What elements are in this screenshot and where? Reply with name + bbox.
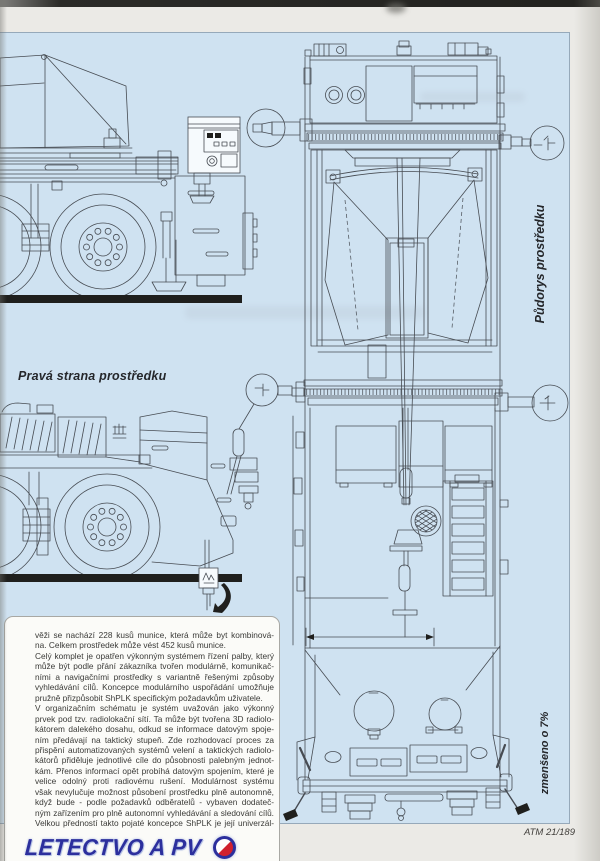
- article-line: pružně přizpůsobit ShPLK specifickým pož…: [35, 693, 274, 703]
- drawing-plan-view: [246, 41, 568, 821]
- ground-line: [0, 295, 242, 303]
- article-line: vyhledávání cílů. Koncepce modulárního u…: [35, 682, 274, 692]
- article-line: ními a navigačními prostředky s variantn…: [35, 672, 274, 682]
- wheel-lugs: [88, 508, 127, 545]
- scale-note-label: zmenšeno o 7%: [539, 712, 551, 795]
- mirror-icon: [233, 429, 244, 456]
- scan-edge-shade-left: [0, 0, 7, 861]
- article-line: Celý komplet je opatřen výkonným systéme…: [35, 651, 274, 661]
- article-line: však nevylučuje možnost působení prostře…: [35, 787, 274, 797]
- detail-circle-probe: [246, 374, 278, 406]
- article-text: věži se nachází 228 kusů munice, která m…: [35, 630, 274, 829]
- magazine-logo: LETECTVO A PV: [25, 834, 236, 861]
- article-line: na. Celkem prostředek může vést 452 kusů…: [35, 640, 274, 650]
- wheel-lugs: [84, 228, 123, 265]
- issue-reference: ATM 21/189: [505, 827, 575, 838]
- article-line: Velkou předností takto pojaté koncepce S…: [35, 818, 274, 828]
- drawing-btr-front: [0, 403, 258, 613]
- plan-view-label: Půdorys prostředku: [533, 205, 547, 324]
- mirror-icon: [515, 803, 530, 815]
- czech-roundel-icon: [213, 836, 236, 859]
- mirror-icon: [283, 809, 298, 821]
- article-line: může být podle přání zákazníka tvořen mo…: [35, 661, 274, 671]
- article-line: velice odolný proti radiovému rušení. Mo…: [35, 776, 274, 786]
- side-view-label: Pravá strana prostředku: [18, 369, 166, 383]
- article-line: když bude - podle požadavků odběratelů -…: [35, 797, 274, 807]
- article-line: ním předávají na taktický stupeň. Zde ro…: [35, 735, 274, 745]
- article-line: kátorů přiděluje jednotlivé cíle do půso…: [35, 755, 274, 765]
- article-line: kám. Přenos informací opět probíhá datov…: [35, 766, 274, 776]
- magazine-page: Pravá strana prostředku Půdorys prostřed…: [0, 0, 600, 861]
- article-line: přispění automatizovaných systémů velení…: [35, 745, 274, 755]
- scan-artifact: [386, 3, 406, 13]
- article-line: V organizačním schématu je systém uvažov…: [35, 703, 274, 713]
- unit-emblem: [113, 424, 126, 438]
- article-line: prvek pod tzv. radiolokační sítí. Ta můž…: [35, 714, 274, 724]
- article-text-box: věži se nachází 228 kusů munice, která m…: [4, 616, 280, 861]
- drawing-transporter-rear: [0, 55, 312, 304]
- article-line: ným zařízením pro plně autonomní vyhledá…: [35, 808, 274, 818]
- magazine-logo-text: LETECTVO A PV: [24, 834, 202, 861]
- detail-circle-probe: [530, 126, 564, 160]
- scan-edge-strip: [0, 0, 600, 7]
- scan-edge-shade-right: [574, 0, 600, 861]
- article-line: kátorem dalekého dosahu, odkud se inform…: [35, 724, 274, 734]
- article-line: věži se nachází 228 kusů munice, která m…: [35, 630, 274, 640]
